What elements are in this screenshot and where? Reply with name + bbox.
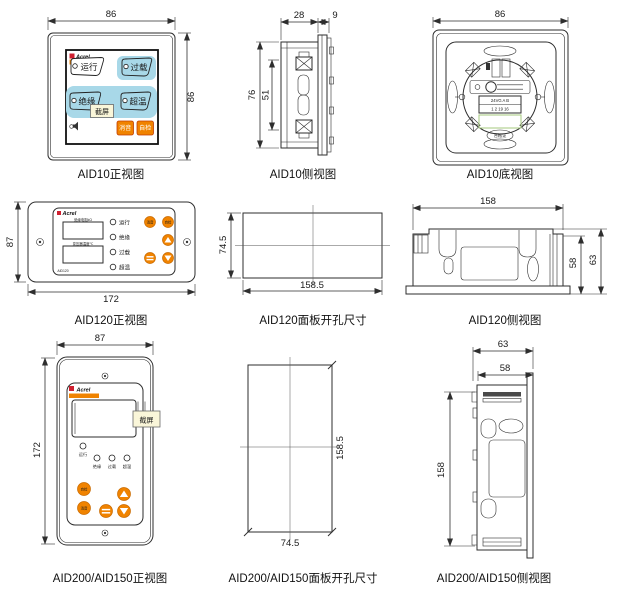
aid200-cutout: 158.5 74.5 AID200/AID150面板开孔尺寸 xyxy=(229,357,378,585)
aid120-front-view: 87 172 Acrel 绝缘电阻kΩ 变压器温度℃ AID120 运行 绝缘 … xyxy=(5,202,195,327)
drawings-svg: 86 86 Acrel AID10 运行 过载 绝缘 超温 截屏 消音 自检 A… xyxy=(0,0,622,609)
dim-depth: 28 xyxy=(294,10,305,21)
dim-width: 158.5 xyxy=(300,280,324,291)
dim-height: 87 xyxy=(5,237,16,248)
cert-label: 合格证 xyxy=(487,130,513,141)
led-overload-label: 过载 xyxy=(108,463,117,470)
aid10-side-view: 28 9 76 51 AID10侧视图 xyxy=(247,10,338,181)
led-run-label: 运行 xyxy=(119,219,131,227)
caption-aid10-front: AID10正视图 xyxy=(78,167,144,181)
brand-text: Acrel xyxy=(62,211,77,217)
dim-height: 158.5 xyxy=(335,436,346,460)
caption-aid200-front: AID200/AID150正视图 xyxy=(53,571,167,585)
aid200-side-view: 63 58 158 AID200/AID150侧视图 xyxy=(436,339,551,585)
model-text: AID120 xyxy=(57,269,68,273)
dim-width: 86 xyxy=(495,9,506,20)
selftest-label: 自检 xyxy=(81,486,88,491)
caption-aid10-side: AID10侧视图 xyxy=(270,167,336,181)
insulation-led xyxy=(72,98,76,102)
clip-nw xyxy=(465,62,480,77)
selftest-label: 自检 xyxy=(139,124,151,132)
dim-width: 158 xyxy=(480,196,496,207)
aid200-front-view: 87 172 Acrel 截屏 运行 绝缘 过载 超温 自检 消音 AID200… xyxy=(32,333,167,585)
run-label: 运行 xyxy=(80,62,98,72)
dim-width: 87 xyxy=(95,333,106,344)
set-button xyxy=(100,505,113,518)
aid120-cutout: 74.5 158.5 AID120面板开孔尺寸 xyxy=(218,205,390,327)
led-row: 运行 绝缘 过载 超温 xyxy=(79,443,132,470)
side-body xyxy=(472,373,533,558)
dim-total: 63 xyxy=(588,255,599,266)
svg-text:合格证: 合格证 xyxy=(494,132,507,139)
mute-label: 消音 xyxy=(119,124,131,132)
screw-left xyxy=(37,239,44,246)
terminal-row2: 1 2 19 16 xyxy=(491,107,509,112)
display2-label: 变压器温度℃ xyxy=(73,241,94,246)
dim-width: 74.5 xyxy=(281,538,300,549)
aid120-side-view: 158 58 63 AID120侧视图 xyxy=(406,196,607,327)
dim-body: 58 xyxy=(500,363,511,374)
screw-top xyxy=(102,373,108,379)
dim-height: 172 xyxy=(32,442,43,458)
label-window xyxy=(479,115,521,128)
caption-aid120-side: AID120侧视图 xyxy=(469,313,542,327)
caption-aid120-cutout: AID120面板开孔尺寸 xyxy=(259,313,366,327)
caption-aid120-front: AID120正视图 xyxy=(75,313,148,327)
side-panel-flange xyxy=(318,35,334,155)
overload-led xyxy=(124,64,128,68)
overtemp-led xyxy=(123,98,127,102)
overtemp-label: 超温 xyxy=(129,97,147,107)
buzzer-row xyxy=(470,81,530,94)
display2 xyxy=(63,246,103,263)
mute-label: 消音 xyxy=(147,219,154,224)
terminal-row1: 24VG A B xyxy=(491,98,509,103)
dim-width: 86 xyxy=(106,9,117,20)
dim-total: 63 xyxy=(498,339,509,350)
led-insulation-label: 绝缘 xyxy=(119,234,131,242)
led-insulation-label: 绝缘 xyxy=(93,463,102,469)
dim-clip: 51 xyxy=(261,90,272,101)
screw-bottom xyxy=(102,530,108,536)
led-run-label: 运行 xyxy=(79,451,87,458)
side-body xyxy=(281,42,318,148)
dim-body: 58 xyxy=(568,258,579,269)
datasheet-dimension-drawings: 86 86 Acrel AID10 运行 过载 绝缘 超温 截屏 消音 自检 A… xyxy=(0,0,622,609)
display xyxy=(72,400,136,437)
selftest-label: 自检 xyxy=(165,219,172,224)
display1-label: 绝缘电阻kΩ xyxy=(74,217,92,222)
dim-height: 86 xyxy=(186,92,197,103)
dim-height: 158 xyxy=(436,462,447,478)
caption-aid200-side: AID200/AID150侧视图 xyxy=(437,571,551,585)
brand-text: Acrel xyxy=(76,388,91,394)
terminal-block: 24VG A B 1 2 19 16 xyxy=(479,96,521,113)
clip-se xyxy=(520,117,535,132)
overload-label: 过载 xyxy=(130,63,148,73)
dim-height: 76 xyxy=(247,90,258,101)
clip-sw xyxy=(465,117,480,132)
side-body xyxy=(406,229,570,294)
caption-aid200-cutout: AID200/AID150面板开孔尺寸 xyxy=(229,571,378,585)
aid10-bottom-view: 86 24VG A B 1 2 19 16 xyxy=(433,9,568,181)
display1 xyxy=(63,222,103,239)
dim-panel: 9 xyxy=(332,10,337,21)
dim-height: 74.5 xyxy=(218,236,229,255)
led-overload-label: 过载 xyxy=(119,249,131,257)
screen-tag-label: 截屏 xyxy=(95,107,109,116)
screen-tag-label: 截屏 xyxy=(140,416,154,425)
caption-aid10-bottom: AID10底视图 xyxy=(467,167,533,181)
mute-label: 消音 xyxy=(81,505,88,510)
dim-width: 172 xyxy=(103,294,119,305)
set-button xyxy=(145,253,156,264)
acrel-logo: Acrel xyxy=(57,211,77,217)
led-column: 运行 绝缘 过载 超温 xyxy=(110,219,130,272)
clip-ne xyxy=(520,62,535,77)
led-overtemp-label: 超温 xyxy=(119,264,131,272)
screw-right xyxy=(184,239,191,246)
run-led xyxy=(73,64,78,69)
led-overtemp-label: 超温 xyxy=(123,463,132,470)
acrel-logo: Acrel xyxy=(69,386,99,398)
aid10-front-view: 86 86 Acrel AID10 运行 过载 绝缘 超温 截屏 消音 自检 A… xyxy=(48,9,197,181)
